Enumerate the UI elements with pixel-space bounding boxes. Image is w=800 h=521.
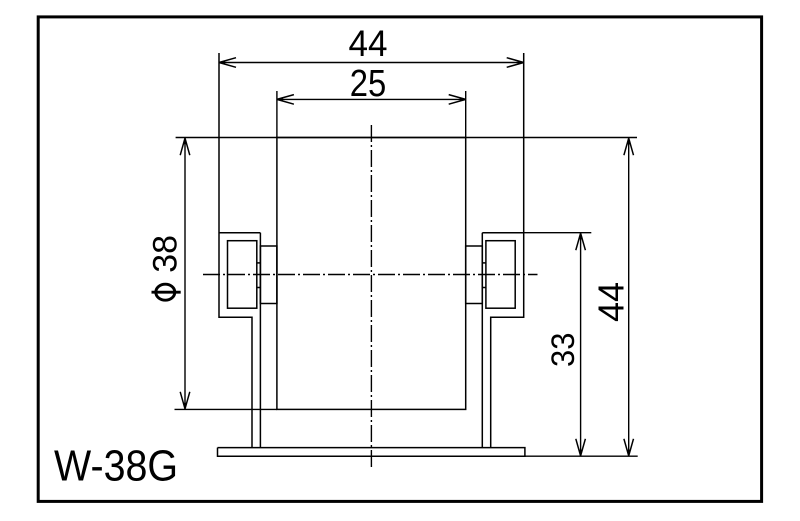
svg-text:W-38G: W-38G (54, 442, 178, 491)
svg-text:44: 44 (349, 23, 388, 64)
svg-text:38: 38 (146, 235, 184, 273)
svg-text:25: 25 (350, 63, 387, 105)
svg-text:33: 33 (545, 332, 581, 367)
svg-text:44: 44 (590, 282, 631, 322)
